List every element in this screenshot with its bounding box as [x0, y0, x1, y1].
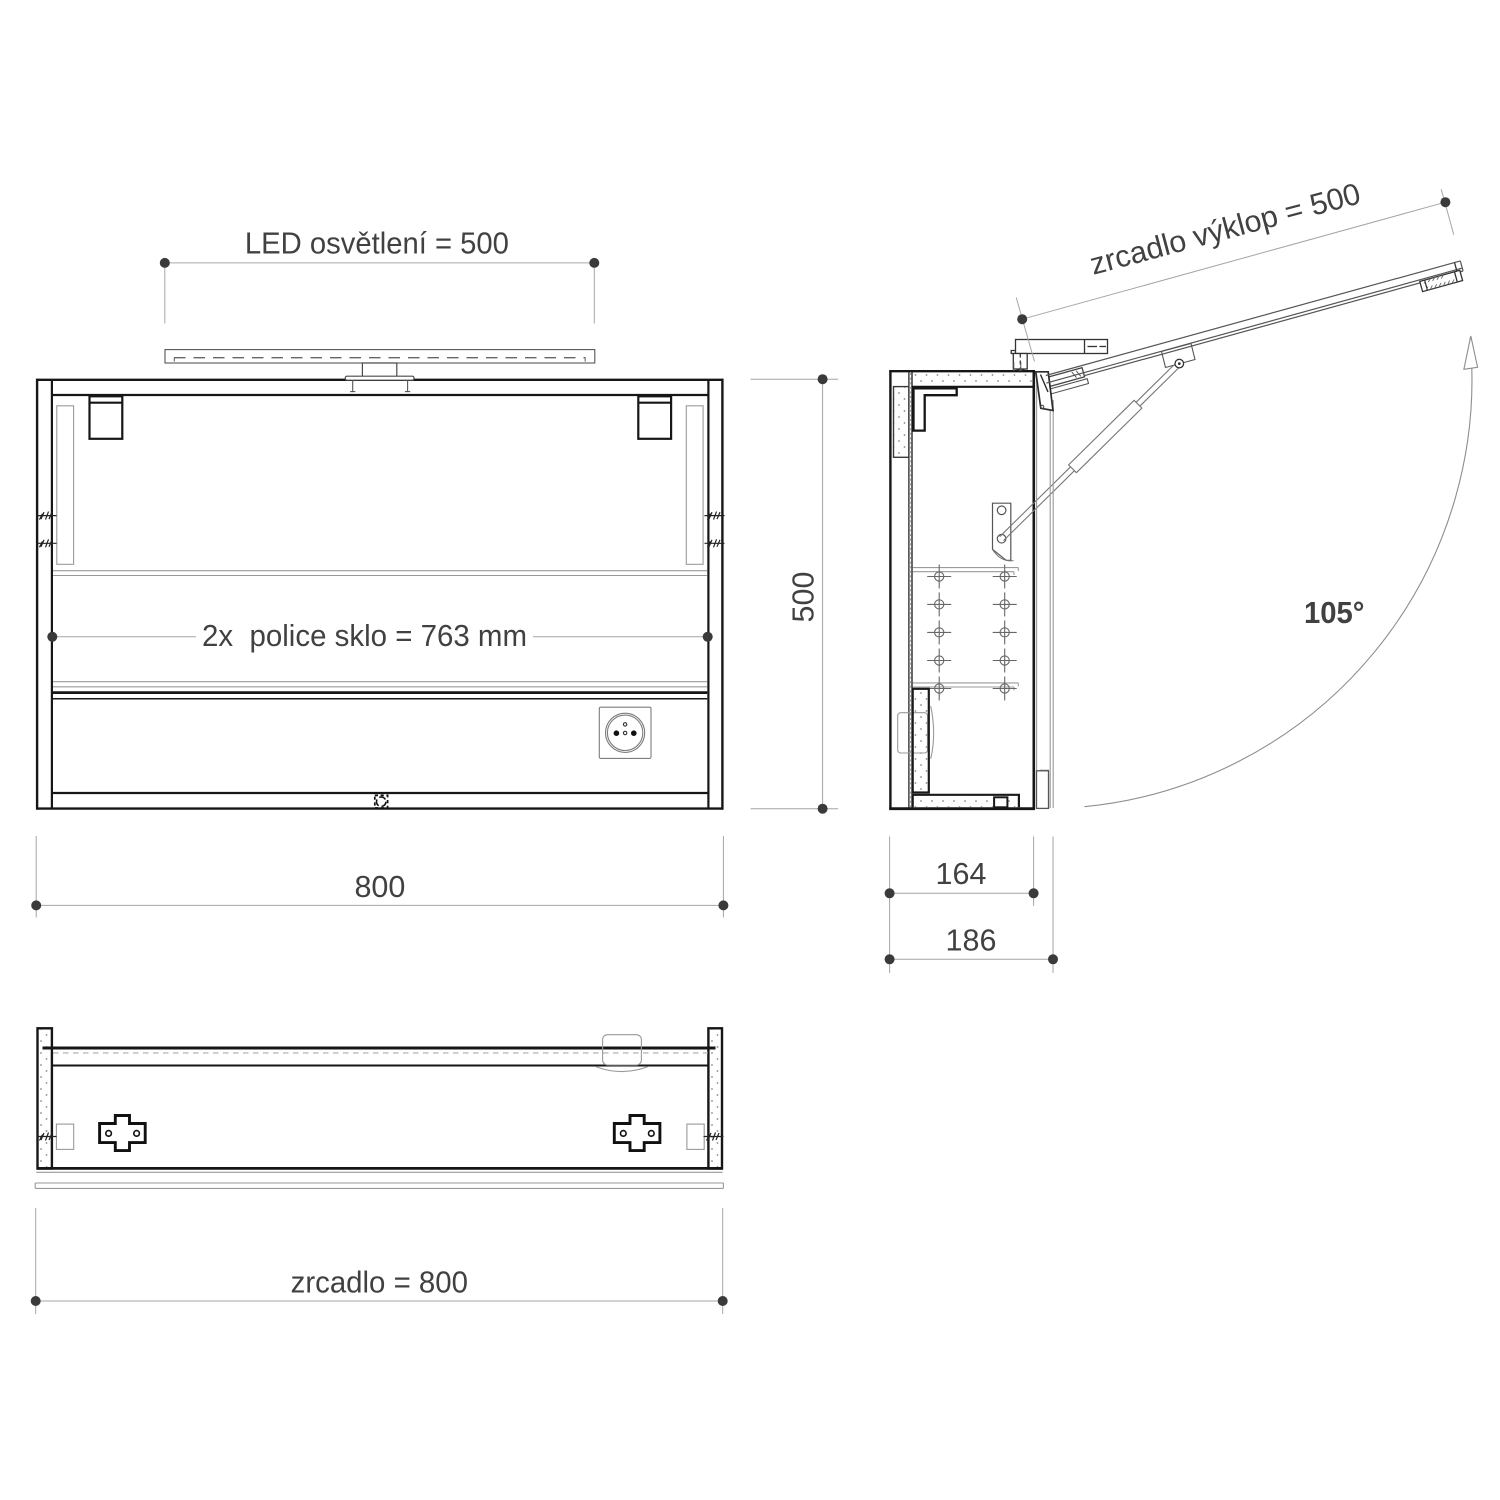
- svg-text:105°: 105°: [1304, 595, 1365, 630]
- svg-text:164: 164: [936, 857, 987, 891]
- svg-text:186: 186: [946, 924, 997, 958]
- svg-text:2x police sklo = 763 mm: 2x police sklo = 763 mm: [202, 619, 527, 653]
- svg-text:500: 500: [787, 572, 821, 623]
- svg-text:800: 800: [354, 870, 405, 904]
- svg-text:zrcadlo = 800: zrcadlo = 800: [291, 1266, 468, 1300]
- svg-text:LED osvětlení = 500: LED osvětlení = 500: [245, 226, 509, 260]
